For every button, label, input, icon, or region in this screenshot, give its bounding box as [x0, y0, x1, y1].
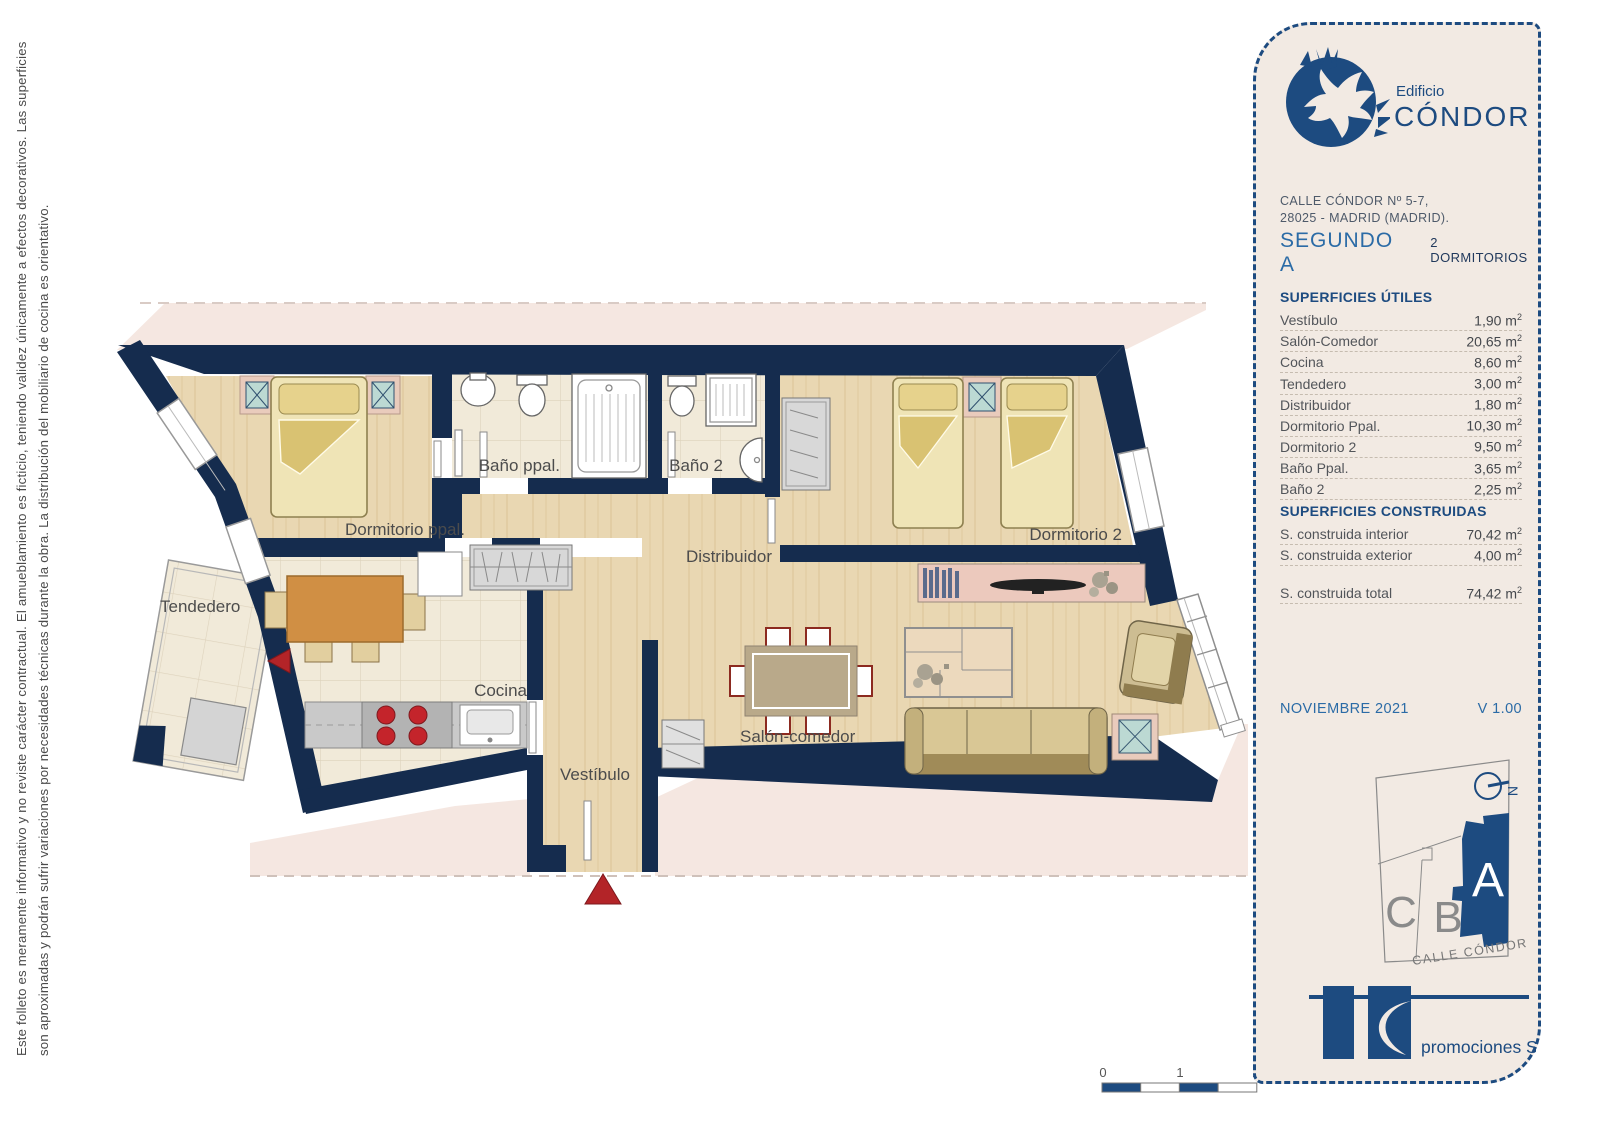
scale-bar: 0 1 2	[1099, 1065, 1259, 1092]
surface-row: Baño Ppal.3,65 m2	[1280, 458, 1522, 479]
disclaimer-line-2: son aproximadas y podrán sufrir variacio…	[36, 10, 51, 1056]
surface-row: Salón-Comedor20,65 m2	[1280, 331, 1522, 352]
surface-label: Vestíbulo	[1280, 312, 1338, 328]
surface-label: S. construida total	[1280, 585, 1392, 601]
surface-value: 3,65 m2	[1474, 460, 1522, 477]
side-table	[1112, 714, 1158, 760]
surface-label: Distribuidor	[1280, 397, 1351, 413]
logo-bar	[1368, 986, 1411, 1059]
surface-value: 4,00 m2	[1474, 547, 1522, 564]
room-label: Baño ppal.	[479, 456, 560, 475]
scale-tick-0: 0	[1099, 1065, 1106, 1080]
surface-value: 1,80 m2	[1474, 396, 1522, 413]
wardrobe	[782, 398, 830, 490]
kitchen-table	[287, 576, 403, 642]
surface-value: 10,30 m2	[1466, 417, 1522, 434]
scale-tick-1: 1	[1176, 1065, 1183, 1080]
street-label: CALLE CÓNDOR	[1411, 935, 1526, 968]
surface-label: Dormitorio 2	[1280, 439, 1356, 455]
surface-row: Baño 22,25 m2	[1280, 479, 1522, 500]
surface-value: 3,00 m2	[1474, 375, 1522, 392]
chair	[305, 642, 332, 662]
rug	[905, 628, 1012, 697]
surface-label: Tendedero	[1280, 376, 1346, 392]
surface-label: S. construida exterior	[1280, 547, 1412, 563]
useful-surfaces-section: SUPERFICIES ÚTILES Vestíbulo1,90 m2Salón…	[1280, 289, 1522, 500]
surface-label: S. construida interior	[1280, 526, 1408, 542]
brochure-page: Tendedero Dormitorio ppal. Baño ppal. Ba…	[0, 0, 1612, 1140]
surface-value: 8,60 m2	[1474, 354, 1522, 371]
unit-name: SEGUNDO A	[1280, 229, 1412, 277]
address-line-2: 28025 - MADRID (MADRID).	[1280, 210, 1449, 227]
version-label: V 1.00	[1478, 701, 1522, 717]
surface-value: 70,42 m2	[1466, 526, 1522, 543]
surface-label: Cocina	[1280, 354, 1324, 370]
surface-label: Baño Ppal.	[1280, 460, 1349, 476]
room-label: Dormitorio ppal.	[345, 520, 465, 539]
surface-row: Dormitorio Ppal.10,30 m2	[1280, 416, 1522, 437]
washer	[181, 698, 246, 765]
surface-label: Salón-Comedor	[1280, 333, 1378, 349]
surface-row: S. construida interior70,42 m2	[1280, 524, 1522, 545]
double-bed	[271, 377, 367, 517]
cabinet-x	[662, 720, 704, 768]
surface-row: Cocina8,60 m2	[1280, 352, 1522, 373]
condor-logo-icon	[1272, 43, 1390, 161]
room-label: Vestíbulo	[560, 765, 630, 784]
unit-row: SEGUNDO A 2 DORMITORIOS	[1280, 229, 1538, 277]
north-letter: N	[1505, 786, 1521, 796]
sofa	[905, 708, 1107, 774]
built-surfaces-section: SUPERFICIES CONSTRUIDAS S. construida in…	[1280, 503, 1522, 604]
logo-bar	[1323, 986, 1354, 1059]
chair	[403, 594, 425, 630]
surface-row: Tendedero3,00 m2	[1280, 373, 1522, 394]
toilet-icon	[668, 376, 696, 386]
unit-a-label: A	[1472, 854, 1504, 907]
chair	[265, 592, 287, 628]
address-line-1: CALLE CÓNDOR Nº 5-7,	[1280, 193, 1449, 210]
disclaimer-line-1: Este folleto es meramente informativo y …	[14, 10, 29, 1056]
building-label: Edificio	[1396, 83, 1444, 100]
armchair	[1118, 619, 1193, 704]
surface-value: 1,90 m2	[1474, 312, 1522, 329]
surface-row: Dormitorio 29,50 m2	[1280, 437, 1522, 458]
surface-value: 2,25 m2	[1474, 481, 1522, 498]
surface-value: 20,65 m2	[1466, 333, 1522, 350]
single-bed	[1001, 378, 1073, 528]
stove-icon	[362, 702, 452, 748]
room-label: Baño 2	[669, 456, 723, 475]
surface-row: Vestíbulo1,90 m2	[1280, 310, 1522, 331]
bedroom-count: 2 DORMITORIOS	[1430, 235, 1538, 265]
built-surfaces-table: S. construida interior70,42 m2S. constru…	[1280, 524, 1522, 604]
tv-icon	[990, 579, 1086, 591]
single-bed	[893, 378, 963, 528]
unit-c-label: C	[1385, 888, 1417, 937]
key-plan: N C B A CALLE CÓNDOR	[1304, 731, 1526, 977]
surface-value: 74,42 m2	[1466, 585, 1522, 602]
entrance-door-leaf	[584, 801, 591, 860]
info-panel: Edificio CÓNDOR CALLE CÓNDOR Nº 5-7, 280…	[1253, 22, 1541, 1084]
chair	[352, 642, 379, 662]
surface-label: Dormitorio Ppal.	[1280, 418, 1380, 434]
room-label: Salón-comedor	[740, 727, 856, 746]
room-label: Distribuidor	[686, 547, 772, 566]
surface-label: Baño 2	[1280, 481, 1324, 497]
entrance-marker-icon	[585, 874, 621, 904]
surface-row: S. construida total74,42 m2	[1280, 583, 1522, 604]
promoter-name: promociones S.L.	[1421, 1037, 1536, 1057]
useful-surfaces-table: Vestíbulo1,90 m2Salón-Comedor20,65 m2Coc…	[1280, 310, 1522, 500]
address-block: CALLE CÓNDOR Nº 5-7, 28025 - MADRID (MAD…	[1280, 193, 1449, 227]
date-row: NOVIEMBRE 2021 V 1.00	[1280, 701, 1522, 717]
room-label: Dormitorio 2	[1029, 525, 1122, 544]
surface-row: S. construida exterior4,00 m2	[1280, 545, 1522, 566]
surface-row: Distribuidor1,80 m2	[1280, 395, 1522, 416]
wardrobe	[470, 545, 572, 590]
built-surfaces-title: SUPERFICIES CONSTRUIDAS	[1280, 503, 1522, 519]
promoter-logo: promociones S.L.	[1284, 981, 1536, 1065]
building-name: CÓNDOR	[1394, 101, 1530, 133]
useful-surfaces-title: SUPERFICIES ÚTILES	[1280, 289, 1522, 305]
surface-value: 9,50 m2	[1474, 438, 1522, 455]
unit-b-label: B	[1433, 893, 1462, 942]
cabinet	[418, 552, 462, 596]
room-label: Cocina	[474, 681, 527, 700]
date-label: NOVIEMBRE 2021	[1280, 701, 1409, 717]
room-label: Tendedero	[160, 597, 240, 616]
sideboard	[918, 564, 1145, 602]
door-leaf	[455, 430, 462, 476]
